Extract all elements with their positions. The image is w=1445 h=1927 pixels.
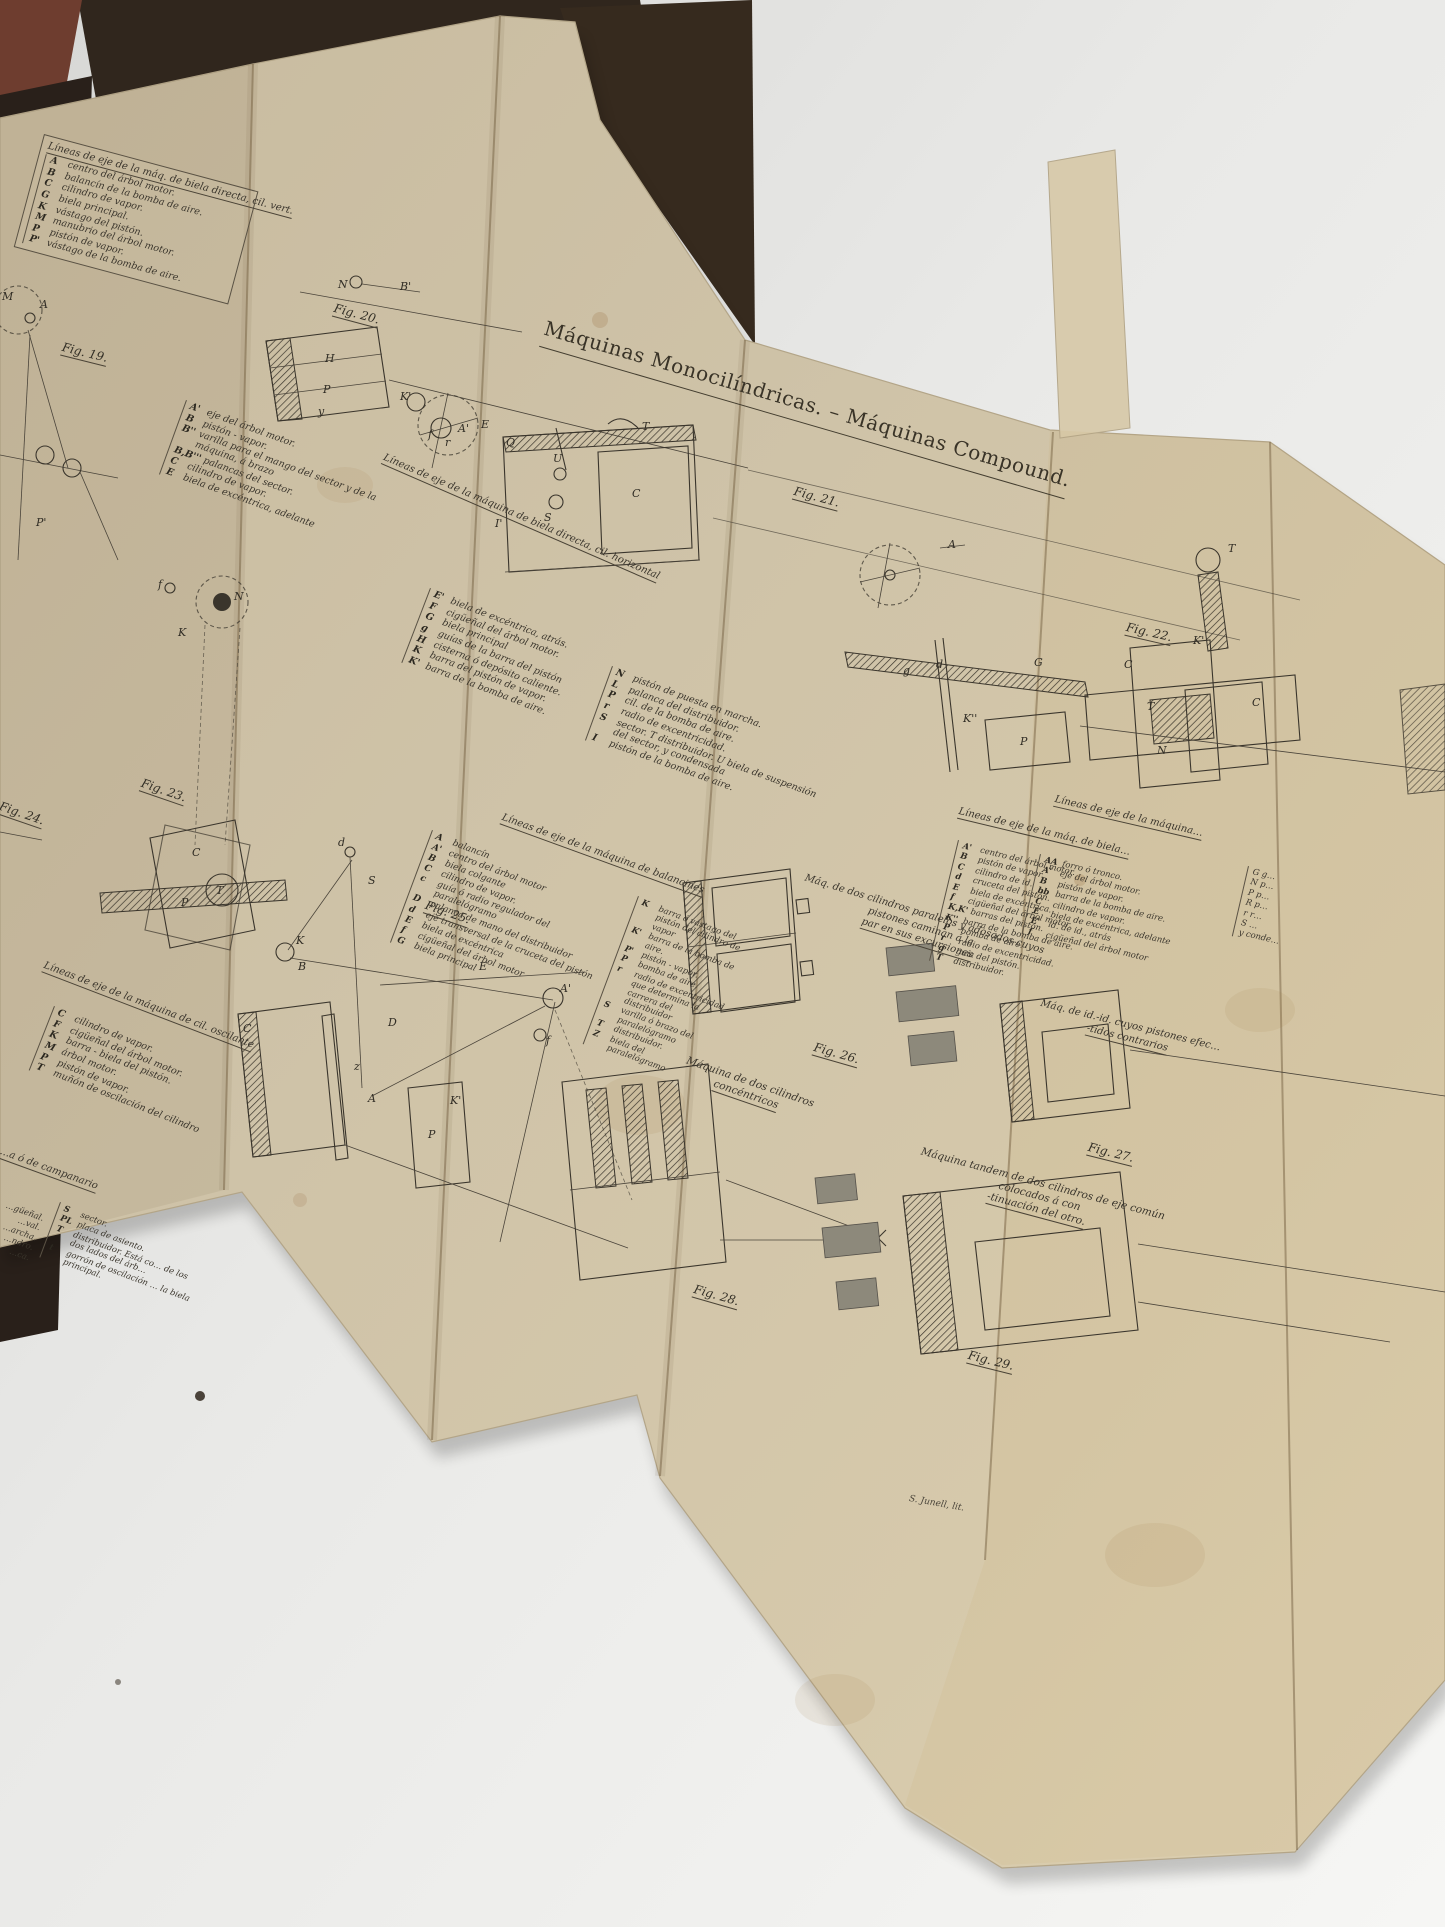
legend-campanario-fragments: …güeñal.…val.…archa.…ndro.…ca. — [0, 1198, 45, 1263]
fig29-caption: Fig. 29. — [966, 1348, 1015, 1375]
lithographer-signature: S. Junell, lit. — [908, 1494, 965, 1514]
caption-maquina-tandem: Máquina tandem de dos cilindros de eje c… — [892, 1140, 1187, 1254]
caption-pistones-contrarios: Máq. de id.-id. cuyos pistones efec…-tid… — [1020, 994, 1238, 1071]
legend-horizontal-col3: Npistón de puesta en marcha.Lpalanca del… — [585, 666, 843, 825]
legend-horizontal-header: Líneas de eje de la máquina de biela dir… — [380, 452, 661, 585]
legend-right-edge-col2-fragments: G g…N p…P p…R p…r r…S …y conde… — [1232, 866, 1338, 958]
legend-horizontal-col1: A'eje del árbol motor.Bpistón - vapor.B'… — [159, 400, 389, 549]
fig19-caption: Fig. 19. — [60, 340, 109, 367]
legend-campanario-header: …a ó de campanario — [0, 1146, 99, 1195]
fig21-caption: Fig. 21. — [792, 484, 841, 512]
plate-title: Máquinas Monocilíndricas. – Máquinas Com… — [539, 316, 1074, 499]
fig22-caption: Fig. 22. — [1124, 620, 1173, 646]
fig24-caption: Fig. 24. — [0, 799, 46, 829]
legend-campanario-items: Ssector.PLplaca de asiento.Tdistribuidor… — [39, 1202, 208, 1314]
fig20-caption: Fig. 20. — [332, 301, 381, 329]
plate-text-layer: Máquinas Monocilíndricas. – Máquinas Com… — [0, 0, 1445, 1927]
legend-biela-directa-vertical: Líneas de eje de la máq. de biela direct… — [14, 134, 259, 304]
fig23-caption: Fig. 23. — [139, 776, 188, 806]
fig28-caption: Fig. 28. — [692, 1282, 741, 1310]
fig26-caption: Fig. 26. — [812, 1040, 861, 1068]
photo-of-engraved-plate: M A P' N B' H P — [0, 0, 1445, 1927]
caption-line: concéntricos — [643, 1054, 848, 1135]
fig27-caption: Fig. 27. — [1086, 1140, 1135, 1167]
